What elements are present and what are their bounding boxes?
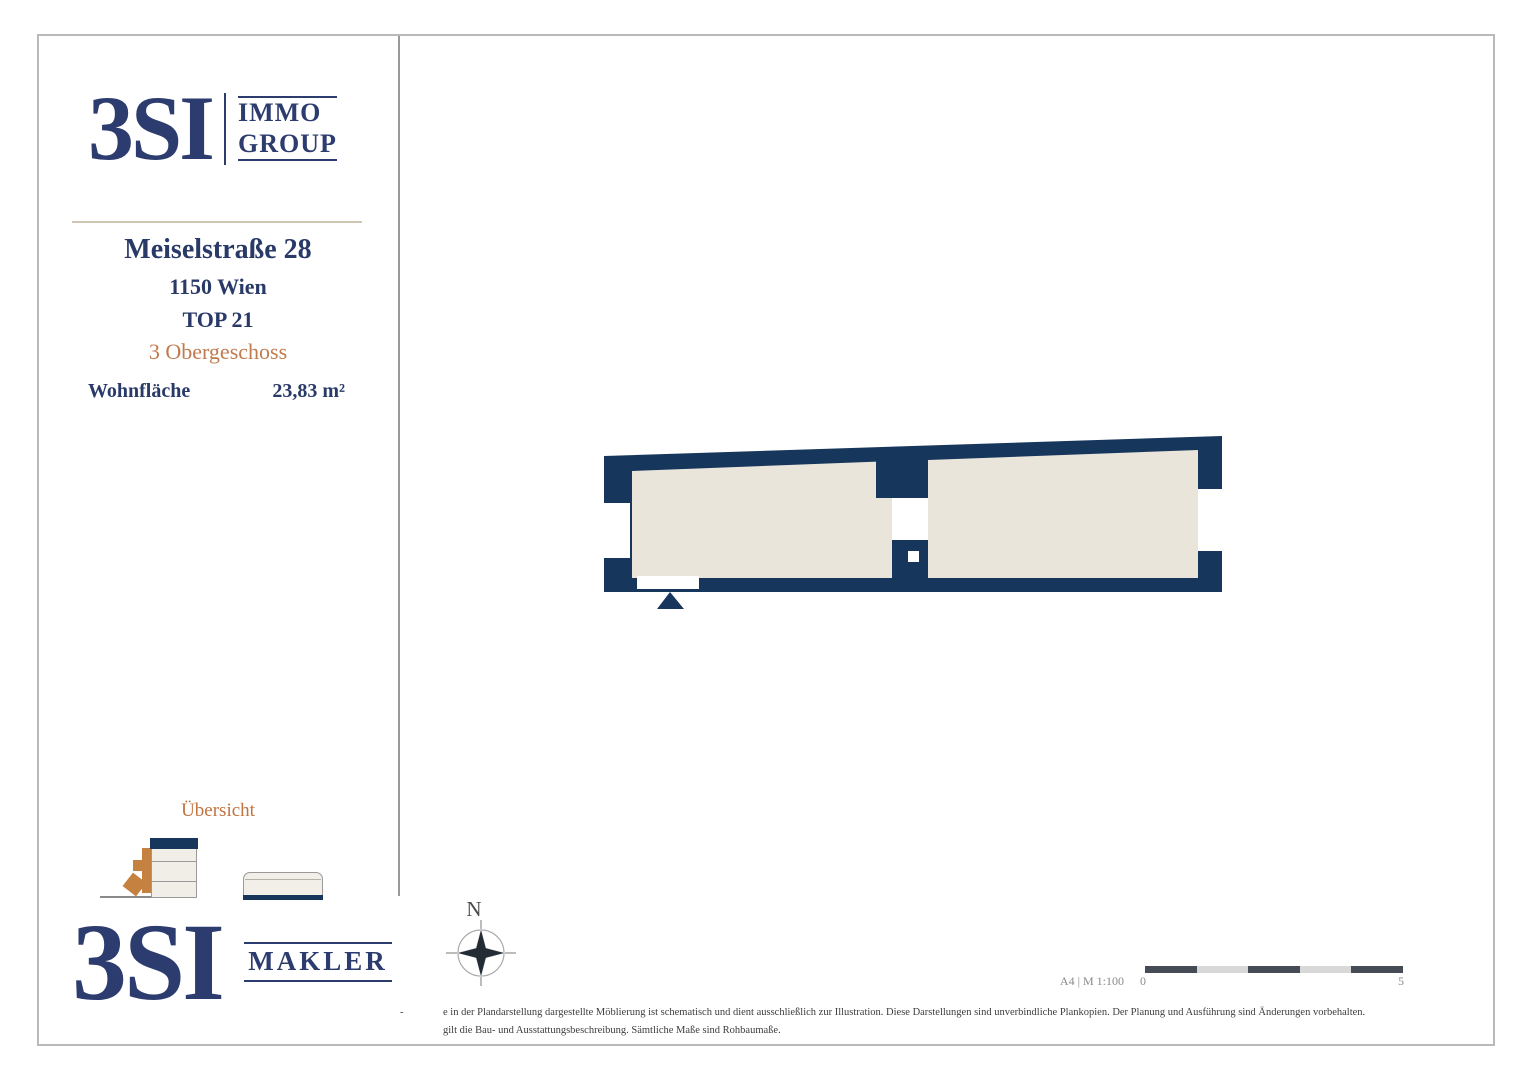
property-city: 1150 Wien	[37, 274, 399, 300]
shaft-square	[908, 551, 919, 562]
overview-building-orange-step	[133, 860, 142, 871]
brand-logo-makler: 3SI MAKLER	[72, 916, 392, 1008]
scale-start-label: 0	[1140, 974, 1146, 989]
property-street: Meiselstraße 28	[37, 234, 399, 266]
brand-wordmark: 3SI	[72, 916, 222, 1008]
brand-subtitle: MAKLER	[244, 942, 392, 982]
brand-subtitle: IMMO GROUP	[238, 96, 337, 161]
scale-caption: A4 | M 1:100	[1028, 974, 1124, 989]
column-divider	[398, 36, 400, 896]
brand-wordmark: 3SI	[88, 90, 212, 167]
brand-sub-line1: MAKLER	[244, 944, 392, 980]
logo-rule-bottom	[238, 159, 337, 161]
scale-segment	[1197, 966, 1248, 973]
overview-building-neighbor-base	[243, 895, 323, 900]
disclaimer-dash: -	[400, 1004, 443, 1022]
scale-segment	[1145, 966, 1197, 973]
window-right	[1198, 489, 1222, 551]
entrance-opening	[637, 576, 699, 589]
overview-floor-line	[152, 881, 196, 882]
overview-building-neighbor-line	[245, 879, 321, 880]
room-right	[928, 450, 1198, 578]
scale-segment	[1351, 966, 1403, 973]
overview-floor-line	[152, 861, 196, 862]
disclaimer-line1: -e in der Plandarstellung dargestellte M…	[400, 1004, 1410, 1022]
brand-sub-line1: IMMO	[238, 98, 337, 129]
disclaimer: -e in der Plandarstellung dargestellte M…	[400, 1004, 1410, 1039]
entrance-arrow-icon	[657, 592, 684, 609]
logo-rule-bottom	[244, 980, 392, 982]
logo-divider	[224, 93, 226, 165]
property-unit: TOP 21	[37, 307, 399, 333]
brand-logo-immogroup: 3SI IMMO GROUP	[88, 90, 337, 167]
disclaimer-line1-text: e in der Plandarstellung dargestellte Mö…	[443, 1007, 1365, 1018]
compass: N	[433, 893, 525, 1003]
address-separator	[72, 221, 362, 223]
brand-sub-line2: GROUP	[238, 129, 337, 160]
property-floor: 3 Obergeschoss	[37, 339, 399, 365]
wall-shoulder	[876, 449, 928, 498]
area-value: 23,83 m²	[272, 380, 345, 403]
door-opening	[892, 498, 928, 540]
area-row: Wohnfläche 23,83 m²	[88, 380, 345, 403]
scale-bar	[1145, 966, 1403, 973]
disclaimer-line2: gilt die Bau- und Ausstattungsbeschreibu…	[443, 1022, 1410, 1040]
floorplan-sheet: 3SI IMMO GROUP Meiselstraße 28 1150 Wien…	[0, 0, 1536, 1087]
room-left	[632, 461, 892, 578]
floor-plan	[585, 420, 1245, 620]
overview-building-main-roof	[150, 838, 198, 849]
window-left	[603, 503, 630, 558]
scale-segment	[1248, 966, 1300, 973]
overview-label: Übersicht	[37, 800, 399, 822]
scale-end-label: 5	[1398, 974, 1404, 989]
area-label: Wohnfläche	[88, 380, 190, 403]
compass-rose-icon	[457, 929, 505, 977]
scale-segment	[1300, 966, 1351, 973]
compass-label: N	[466, 897, 481, 921]
